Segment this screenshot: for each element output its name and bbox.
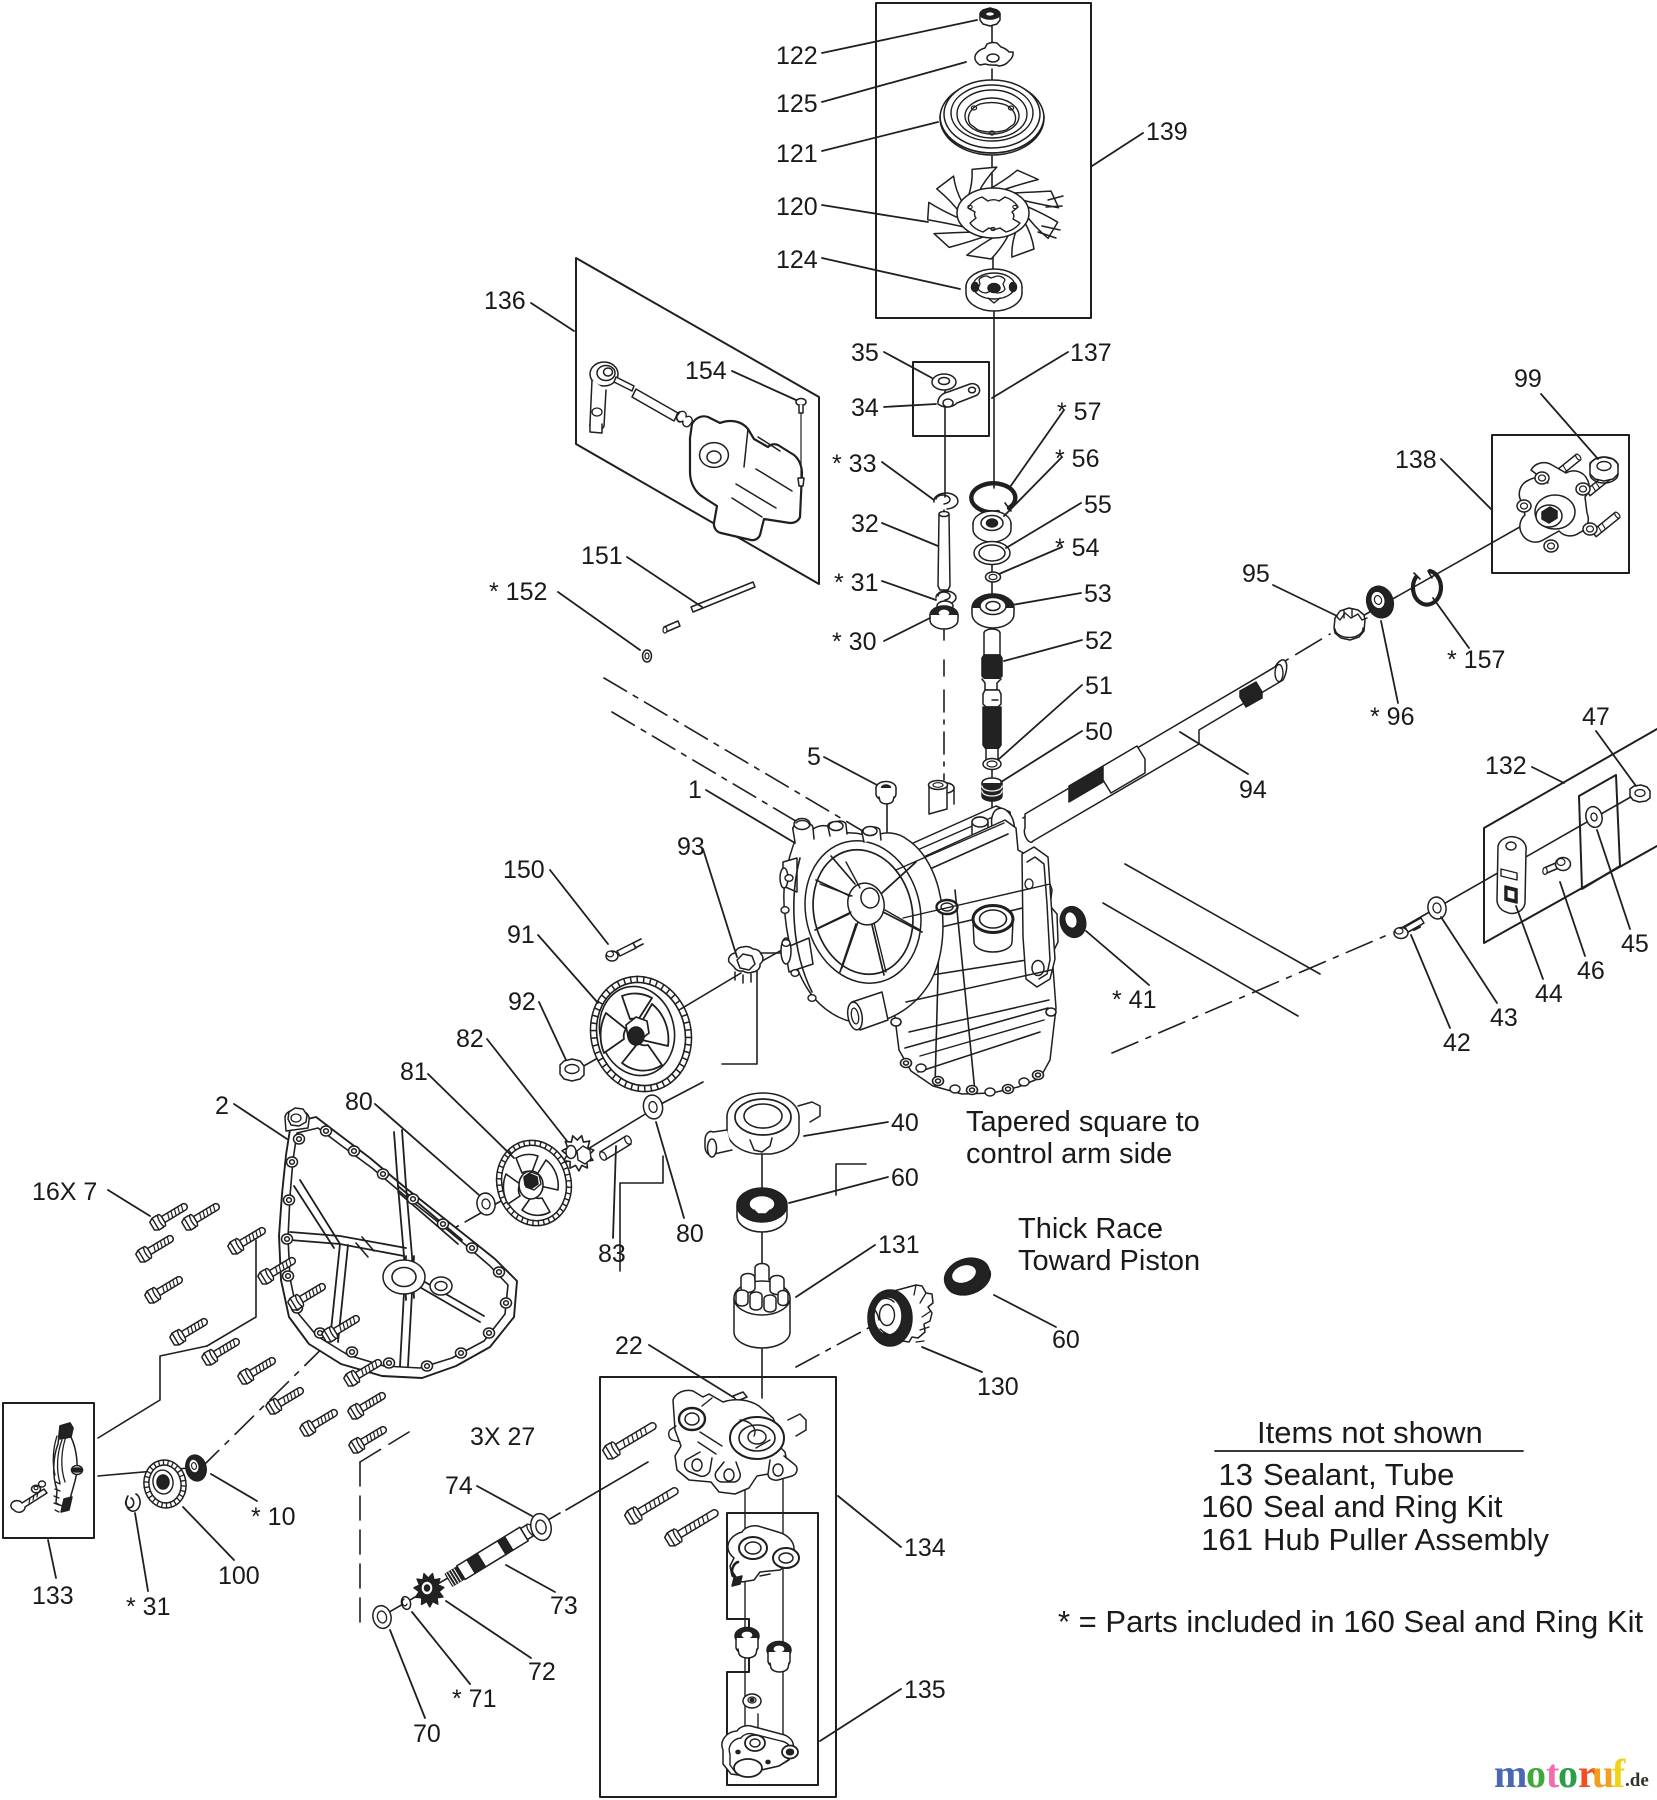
- svg-text:32: 32: [851, 510, 879, 538]
- svg-text:92: 92: [508, 988, 536, 1016]
- svg-text:133: 133: [32, 1582, 74, 1610]
- svg-text:91: 91: [507, 921, 535, 949]
- svg-text:51: 51: [1085, 672, 1113, 700]
- svg-text:134: 134: [904, 1534, 946, 1562]
- svg-text:* 56: * 56: [1055, 445, 1099, 473]
- svg-text:Seal and Ring Kit: Seal and Ring Kit: [1263, 1489, 1503, 1524]
- svg-text:2: 2: [215, 1092, 229, 1120]
- svg-text:Sealant, Tube: Sealant, Tube: [1263, 1457, 1454, 1492]
- svg-text:53: 53: [1084, 580, 1112, 608]
- svg-text:80: 80: [676, 1220, 704, 1248]
- svg-text:83: 83: [598, 1240, 626, 1268]
- svg-text:40: 40: [891, 1109, 919, 1137]
- svg-text:121: 121: [776, 140, 818, 168]
- svg-text:124: 124: [776, 246, 818, 274]
- svg-text:151: 151: [581, 542, 623, 570]
- svg-text:122: 122: [776, 42, 818, 70]
- svg-text:99: 99: [1514, 365, 1542, 393]
- svg-text:* 30: * 30: [832, 628, 876, 656]
- svg-text:16X 7: 16X 7: [32, 1178, 97, 1206]
- svg-text:34: 34: [851, 394, 879, 422]
- svg-text:* 96: * 96: [1370, 703, 1414, 731]
- svg-text:Tapered square to: Tapered square to: [966, 1106, 1200, 1138]
- svg-text:135: 135: [904, 1676, 946, 1704]
- svg-text:* 157: * 157: [1447, 646, 1505, 674]
- svg-text:73: 73: [550, 1592, 578, 1620]
- svg-text:50: 50: [1085, 718, 1113, 746]
- svg-text:160: 160: [1201, 1489, 1253, 1524]
- svg-text:125: 125: [776, 90, 818, 118]
- svg-text:60: 60: [1052, 1326, 1080, 1354]
- svg-text:Toward Piston: Toward Piston: [1018, 1245, 1200, 1277]
- svg-text:132: 132: [1485, 752, 1527, 780]
- svg-text:* 33: * 33: [832, 450, 876, 478]
- svg-text:74: 74: [445, 1472, 473, 1500]
- svg-text:* 10: * 10: [251, 1503, 295, 1531]
- svg-text:70: 70: [413, 1720, 441, 1748]
- svg-text:52: 52: [1085, 627, 1113, 655]
- svg-text:22: 22: [615, 1332, 643, 1360]
- svg-text:94: 94: [1239, 776, 1267, 804]
- svg-text:* 71: * 71: [452, 1685, 496, 1713]
- svg-text:.de: .de: [1625, 1770, 1649, 1791]
- svg-text:131: 131: [878, 1231, 920, 1259]
- svg-text:100: 100: [218, 1562, 260, 1590]
- svg-text:44: 44: [1535, 980, 1563, 1008]
- svg-text:138: 138: [1395, 446, 1437, 474]
- svg-text:* 152: * 152: [489, 578, 547, 606]
- svg-text:* 31: * 31: [834, 569, 878, 597]
- svg-text:137: 137: [1070, 339, 1112, 367]
- svg-text:Items not shown: Items not shown: [1257, 1415, 1483, 1450]
- svg-text:130: 130: [977, 1373, 1019, 1401]
- svg-text:139: 139: [1146, 118, 1188, 146]
- svg-text:* = Parts included in 160 Seal: * = Parts included in 160 Seal and Ring …: [1058, 1604, 1643, 1639]
- svg-text:m: m: [1494, 1751, 1527, 1796]
- svg-text:Hub Puller Assembly: Hub Puller Assembly: [1263, 1522, 1550, 1557]
- svg-text:35: 35: [851, 339, 879, 367]
- svg-text:5: 5: [807, 743, 821, 771]
- svg-text:u: u: [1592, 1751, 1614, 1796]
- svg-text:161: 161: [1201, 1522, 1253, 1557]
- svg-text:72: 72: [528, 1658, 556, 1686]
- svg-text:136: 136: [484, 287, 526, 315]
- svg-text:* 41: * 41: [1112, 986, 1156, 1014]
- svg-text:150: 150: [503, 856, 545, 884]
- svg-text:93: 93: [677, 833, 705, 861]
- svg-text:47: 47: [1582, 703, 1610, 731]
- svg-text:60: 60: [891, 1164, 919, 1192]
- svg-text:3X 27: 3X 27: [470, 1423, 535, 1451]
- svg-text:80: 80: [345, 1088, 373, 1116]
- svg-text:o: o: [1526, 1751, 1546, 1796]
- svg-text:1: 1: [688, 776, 702, 804]
- svg-text:Thick Race: Thick Race: [1018, 1213, 1163, 1245]
- svg-text:81: 81: [400, 1058, 428, 1086]
- svg-text:120: 120: [776, 193, 818, 221]
- svg-text:45: 45: [1621, 930, 1649, 958]
- svg-text:154: 154: [685, 357, 727, 385]
- svg-text:95: 95: [1242, 560, 1270, 588]
- svg-text:f: f: [1612, 1751, 1626, 1796]
- svg-text:* 31: * 31: [126, 1593, 170, 1621]
- svg-text:46: 46: [1577, 957, 1605, 985]
- svg-text:55: 55: [1084, 491, 1112, 519]
- svg-text:o: o: [1558, 1751, 1578, 1796]
- svg-text:13: 13: [1219, 1457, 1253, 1492]
- svg-text:control arm side: control arm side: [966, 1138, 1172, 1170]
- svg-text:42: 42: [1443, 1029, 1471, 1057]
- svg-text:43: 43: [1490, 1004, 1518, 1032]
- svg-text:82: 82: [456, 1025, 484, 1053]
